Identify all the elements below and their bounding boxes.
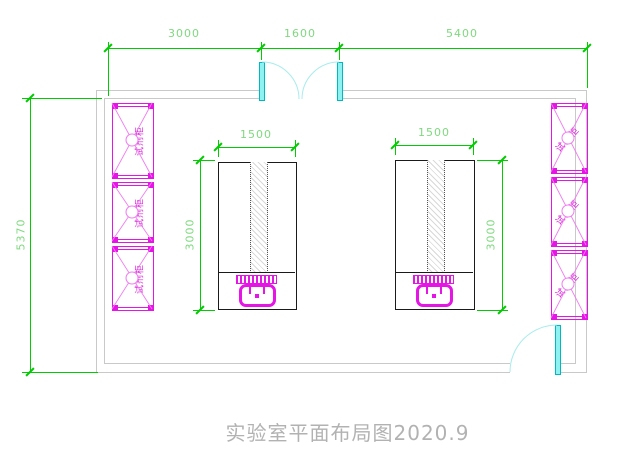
side-door-leaf: [555, 325, 561, 375]
cabinet-label: 试剂柜: [133, 264, 146, 294]
dim-line-top: [108, 48, 587, 49]
left-sink-drain: [255, 294, 259, 298]
dim-label-top-left: 3000: [154, 27, 214, 40]
left-sink-tap-1: [249, 286, 251, 294]
dim-ext: [22, 98, 102, 99]
top-door-opening: [262, 88, 337, 101]
right-sink-tap-2: [440, 286, 442, 294]
dim-ext: [473, 138, 474, 155]
dim-ext: [218, 140, 219, 157]
dim-line-bench-right-width: [395, 145, 473, 146]
dim-label-overall-height: 5370: [15, 205, 28, 265]
double-door-right-leaf: [337, 62, 343, 101]
bottom-door-opening: [510, 361, 557, 375]
cabinet-label: 试剂柜: [552, 269, 582, 300]
reagent-cabinet-left-3: 试剂柜: [112, 246, 154, 311]
lab-bench-left-drip-rack: [236, 275, 277, 284]
dim-ext: [295, 140, 296, 157]
lab-bench-left-divider: [218, 272, 295, 273]
lab-bench-right-drip-rack: [413, 275, 454, 284]
cabinet-label: 试剂柜: [552, 123, 582, 154]
double-door-left-leaf: [259, 62, 265, 101]
dim-label-top-right: 5400: [432, 27, 492, 40]
dim-line-bench-right-depth: [502, 160, 503, 310]
dim-ext: [108, 42, 109, 96]
reagent-cabinet-left-1: 试剂柜: [112, 103, 154, 179]
dim-line-bench-left-depth: [200, 160, 201, 310]
dim-ext: [477, 310, 508, 311]
dim-label-top-middle: 1600: [270, 27, 330, 40]
right-sink-drain: [432, 294, 436, 298]
reagent-cabinet-right-1: 试剂柜: [551, 103, 588, 174]
reagent-cabinet-right-3: 试剂柜: [551, 250, 588, 320]
dim-label-bench-left-width: 1500: [226, 128, 286, 141]
dim-label-bench-right-width: 1500: [404, 126, 464, 139]
right-sink-tap-1: [426, 286, 428, 294]
drawing-title: 实验室平面布局图2020.9: [225, 419, 470, 447]
dim-ext: [395, 138, 396, 155]
wall-inner: [104, 98, 576, 364]
cabinet-label: 试剂柜: [133, 126, 146, 156]
cabinet-label: 试剂柜: [133, 198, 146, 228]
dim-line-bench-left-width: [218, 147, 295, 148]
reagent-cabinet-left-2: 试剂柜: [112, 182, 154, 243]
lab-bench-right-divider: [395, 272, 473, 273]
dim-line-left: [30, 98, 31, 372]
reagent-cabinet-right-2: 试剂柜: [551, 177, 588, 247]
left-sink-tap-2: [263, 286, 265, 294]
lab-bench-left-reagent-shelf: [250, 162, 268, 273]
dim-ext: [477, 160, 508, 161]
dim-label-bench-left-depth: 3000: [184, 205, 197, 265]
dim-label-bench-right-depth: 3000: [485, 205, 498, 265]
dim-ext: [22, 372, 98, 373]
cabinet-label: 试剂柜: [552, 196, 582, 227]
lab-bench-right-reagent-shelf: [427, 160, 445, 273]
floor-plan: 试剂柜 试剂柜 试剂柜 试剂柜 试剂柜 试剂柜: [0, 0, 619, 469]
